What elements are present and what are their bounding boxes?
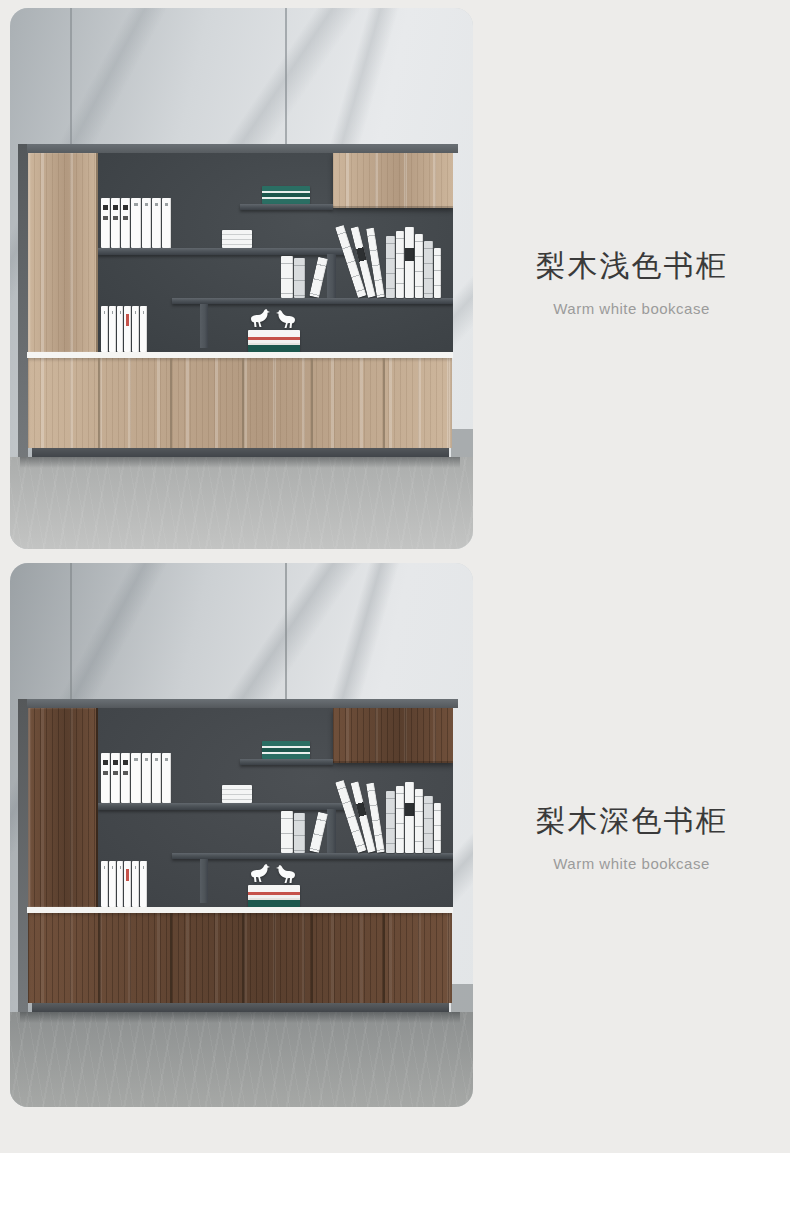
product-title: 梨木浅色书柜 [473,249,790,283]
upper-right-cabinet-door [333,153,453,208]
binder [121,753,130,803]
product-row-dark: 梨木深色书柜 Warm white bookcase [0,563,790,1107]
door-gap [311,913,313,1003]
book [294,813,305,853]
stacked-teal-books [262,186,310,204]
book [396,231,404,298]
door-gap [383,913,385,1003]
binder [142,198,151,248]
shelf-divider [327,809,336,853]
wall-baseboard [451,429,473,457]
door-gap [170,358,172,448]
book [415,234,423,298]
binder [131,753,140,803]
leaning-book [309,257,328,298]
stacked-books-with-birds [248,330,300,352]
binder [162,198,171,248]
shelf [240,759,333,765]
binder [109,861,116,907]
binder [124,306,131,352]
white-binder-row [101,861,147,907]
binder [132,306,139,352]
standing-books [281,254,327,298]
bird-figurine [249,861,273,885]
door-gap [383,358,385,448]
book [434,803,441,853]
standing-books [281,809,327,853]
stacked-teal-books [262,741,310,759]
wall-shadow [18,699,28,1012]
stacked-books-with-birds [248,885,300,907]
shelf-divider [200,859,208,903]
product-info: 梨木浅色书柜 Warm white bookcase [473,8,790,549]
book [424,796,433,853]
book [386,791,395,853]
cabinet-top-panel [27,144,458,153]
door-gap [98,913,100,1003]
book [405,227,414,298]
upper-right-cabinet-door [333,708,453,763]
binder [152,198,161,248]
book [386,236,395,298]
white-binder-row [101,306,147,352]
binder [131,198,140,248]
cabinet-floor-shadow [20,457,460,468]
wall-shadow [18,144,28,457]
book-group [358,218,445,298]
leaning-book [309,812,328,853]
product-image-light-bookcase[interactable] [10,8,473,549]
shelf [240,204,333,210]
left-cabinet-door [28,153,98,352]
stacked-white-books [222,785,252,803]
bookcase-interior [98,708,453,907]
door-gap [311,358,313,448]
shelf [172,298,453,304]
product-image-dark-bookcase[interactable] [10,563,473,1107]
binder [140,306,147,352]
bird-figurine [249,306,273,330]
white-binder-row [101,753,171,803]
book [294,258,305,298]
wall-baseboard [451,984,473,1012]
book [415,789,423,853]
shelf-divider [327,254,336,298]
cabinet-top-panel [27,699,458,708]
stacked-white-books [222,230,252,248]
binder [121,198,130,248]
book [281,811,293,853]
door-gap [98,358,100,448]
door-gap [242,358,244,448]
product-subtitle: Warm white bookcase [473,855,790,872]
concrete-floor [10,1012,473,1107]
shelf [172,853,453,859]
left-cabinet-door [28,708,98,907]
door-gap [242,913,244,1003]
lower-cabinet-doors [28,913,452,1003]
product-title: 梨木深色书柜 [473,804,790,838]
book-group [358,773,445,853]
lower-cabinet-doors [28,358,452,448]
cabinet-base [32,448,449,457]
binder [117,861,124,907]
binder [162,753,171,803]
bird-figurine [273,307,297,331]
product-subtitle: Warm white bookcase [473,300,790,317]
binder [124,861,131,907]
book [424,241,433,298]
concrete-floor [10,457,473,549]
binder [111,753,120,803]
door-gap [170,913,172,1003]
product-row-light: 梨木浅色书柜 Warm white bookcase [0,8,790,549]
book [281,256,293,298]
cabinet-base [32,1003,449,1012]
bookcase-interior [98,153,453,352]
bird-figurine [273,862,297,886]
binder [111,198,120,248]
binder [101,198,110,248]
binder [152,753,161,803]
binder [132,861,139,907]
page-background: 梨木浅色书柜 Warm white bookcase [0,0,790,1153]
book [405,782,414,853]
shelf-divider [200,304,208,348]
cabinet-floor-shadow [20,1012,460,1023]
binder [140,861,147,907]
product-info: 梨木深色书柜 Warm white bookcase [473,563,790,1107]
binder [101,861,108,907]
binder [101,306,108,352]
book [434,248,441,298]
binder [101,753,110,803]
book [396,786,404,853]
binder [109,306,116,352]
binder [142,753,151,803]
white-binder-row [101,198,171,248]
binder [117,306,124,352]
